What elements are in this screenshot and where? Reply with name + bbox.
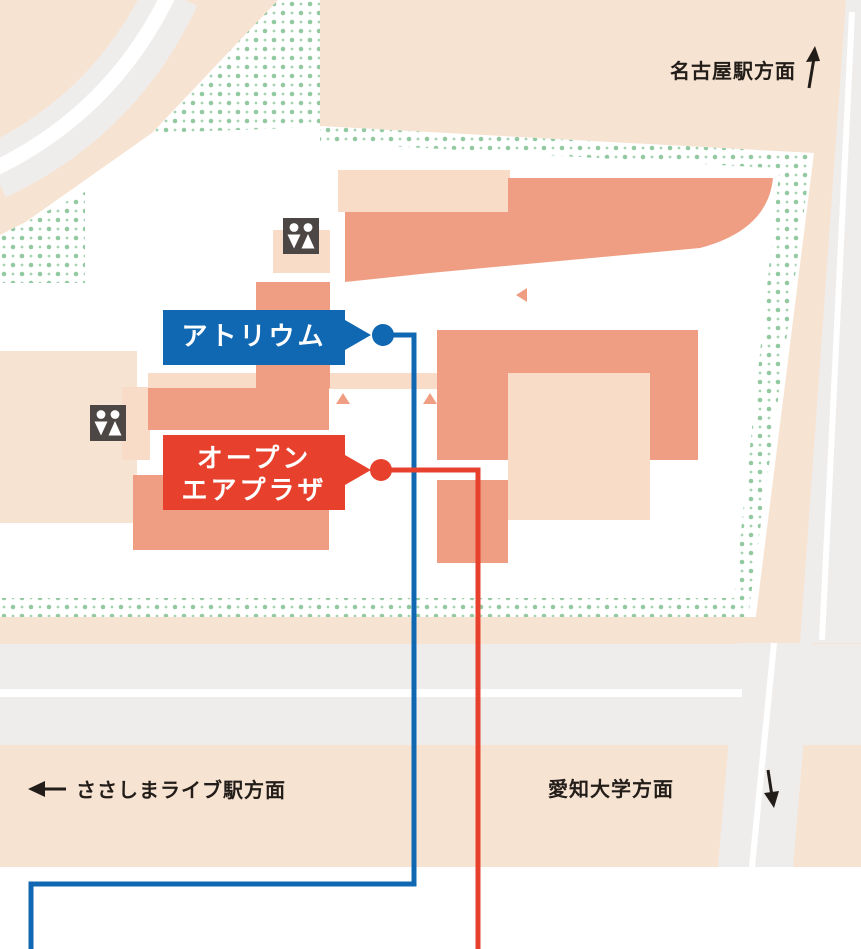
entrance-marker-up-1 — [336, 393, 350, 404]
direction-aichi-label: 愛知大学方面 — [548, 777, 674, 801]
atrium-anchor-dot — [372, 324, 394, 346]
entrance-marker-up-2 — [423, 393, 437, 404]
direction-sasashima-label: ささしまライブ駅方面 — [76, 778, 286, 802]
plaza-anchor-dot — [370, 459, 392, 481]
building-center-south — [437, 480, 508, 563]
building-light-strip-west — [122, 387, 150, 460]
building-atrium-bar — [148, 388, 329, 430]
building-center-east-column — [650, 373, 698, 460]
access-map: 名古屋駅方面 ささしまライブ駅方面 愛知大学方面 アトリウム オープン エアプラ… — [0, 0, 861, 949]
building-light-center — [508, 373, 650, 520]
entrance-marker-left — [516, 288, 527, 302]
dotted-strip-bottom — [0, 598, 740, 617]
road-center-stripe — [0, 689, 742, 697]
direction-nagoya-label: 名古屋駅方面 — [670, 59, 796, 83]
map-canvas: 名古屋駅方面 ささしまライブ駅方面 愛知大学方面 アトリウム オープン エアプラ… — [0, 0, 861, 949]
restroom-icon — [90, 405, 126, 441]
plaza-label-line1: オープン — [197, 443, 311, 473]
atrium-pointer — [345, 320, 371, 350]
building-light-north — [338, 170, 510, 212]
atrium-label: アトリウム — [181, 321, 326, 351]
plaza-pointer — [345, 455, 371, 485]
band-above-road — [0, 617, 861, 644]
restroom-icon — [283, 218, 319, 254]
plaza-label-line2: エアプラザ — [181, 475, 326, 505]
